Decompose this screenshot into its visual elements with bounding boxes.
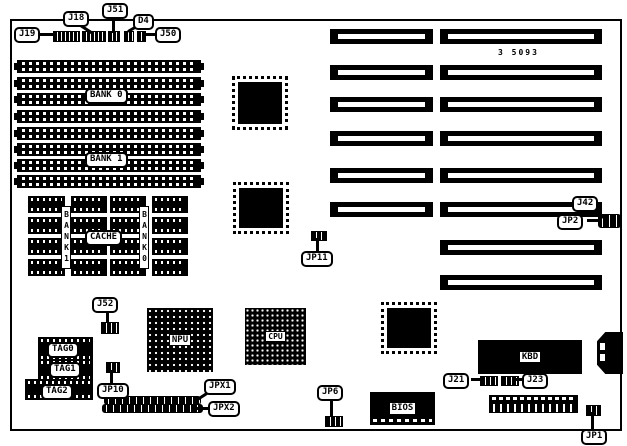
isa-slot-short-5 [330, 168, 433, 183]
jumper-j52 [101, 322, 119, 334]
connector-j19 [53, 31, 80, 42]
label-tag1: TAG1 [49, 362, 81, 378]
isa-slot-long-8 [440, 275, 602, 290]
isa-slot-long-5 [440, 168, 602, 183]
isa-slot-long-3 [440, 97, 602, 112]
motherboard-layout-diagram: J19 J18 J51 D4 J50 BANK 0 BANK 1 BANK1 B… [0, 0, 627, 446]
isa-slot-short-3 [330, 97, 433, 112]
power-connector [489, 395, 578, 413]
callout-j50: J50 [155, 27, 181, 43]
callout-jp1: JP1 [581, 429, 607, 445]
label-tag0: TAG0 [47, 342, 79, 358]
board-part-number: 3 5093 [498, 48, 539, 57]
label-npu: NPU [169, 334, 191, 347]
qfp-chip-3 [381, 302, 437, 354]
callout-j42: J42 [572, 196, 598, 212]
callout-jp11: JP11 [301, 251, 333, 267]
header-jpx2 [102, 404, 203, 413]
isa-slot-long-1 [440, 29, 602, 44]
label-cache: CACHE [85, 230, 122, 246]
label-bank1: BANK 1 [85, 152, 128, 168]
label-bios: BIOS [389, 402, 417, 415]
label-tag2: TAG2 [41, 384, 73, 400]
cpu-chip: CPU [245, 308, 306, 365]
cache-sram-chip [152, 196, 188, 213]
callout-jp6: JP6 [317, 385, 343, 401]
cache-sram-chip [152, 238, 188, 255]
isa-slot-short-4 [330, 131, 433, 146]
leader-jp10 [110, 370, 113, 383]
leader-j19 [40, 33, 56, 36]
isa-slot-long-7 [440, 240, 602, 255]
leader-jp2 [587, 219, 600, 222]
callout-d4: D4 [133, 14, 154, 30]
simm-socket-4 [17, 110, 201, 123]
callout-j51: J51 [102, 3, 128, 19]
jumper-j21 [480, 376, 498, 386]
cache-sram-chip [28, 238, 65, 255]
isa-slot-long-4 [440, 131, 602, 146]
leader-jp1 [591, 412, 594, 430]
cache-sram-chip [28, 196, 65, 213]
label-cache-bank0: BANK0 [139, 206, 149, 269]
isa-slot-short-6 [330, 202, 433, 217]
callout-jp10: JP10 [97, 383, 129, 399]
simm-socket-5 [17, 127, 201, 140]
label-cpu: CPU [265, 331, 285, 343]
qfp-chip-1 [232, 76, 288, 130]
kbd-controller-chip: KBD [478, 340, 582, 374]
keyboard-din-connector [597, 332, 623, 374]
isa-slot-short-2 [330, 65, 433, 80]
callout-j19: J19 [14, 27, 40, 43]
cache-sram-chip [28, 217, 65, 234]
jumper-jp6 [325, 416, 343, 427]
qfp-chip-2 [233, 182, 289, 234]
label-cache-bank1: BANK1 [61, 206, 71, 269]
isa-slot-long-2 [440, 65, 602, 80]
cache-sram-chip [152, 217, 188, 234]
npu-socket: NPU [147, 308, 213, 372]
callout-jpx1: JPX1 [204, 379, 236, 395]
connector-j18 [82, 31, 106, 42]
label-bank0: BANK 0 [85, 88, 128, 104]
cache-sram-chip [71, 259, 108, 276]
simm-socket-8 [17, 175, 201, 188]
din-pinhole [600, 343, 605, 350]
callout-j18: J18 [63, 11, 89, 27]
cache-sram-chip [28, 259, 65, 276]
callout-j23: J23 [522, 373, 548, 389]
callout-j52: J52 [92, 297, 118, 313]
label-kbd: KBD [519, 351, 541, 364]
isa-slot-short-1 [330, 29, 433, 44]
jumper-jp10 [106, 362, 120, 373]
leader-j21 [471, 378, 482, 381]
cache-sram-chip [152, 259, 188, 276]
simm-socket-1 [17, 60, 201, 73]
leader-jp11 [316, 238, 319, 252]
callout-j21: J21 [443, 373, 469, 389]
din-pinhole [600, 354, 605, 361]
callout-jpx2: JPX2 [208, 401, 240, 417]
bios-chip: BIOS [370, 392, 435, 425]
cache-sram-chip [71, 196, 108, 213]
callout-jp2: JP2 [557, 214, 583, 230]
jumper-jp11 [311, 231, 327, 241]
